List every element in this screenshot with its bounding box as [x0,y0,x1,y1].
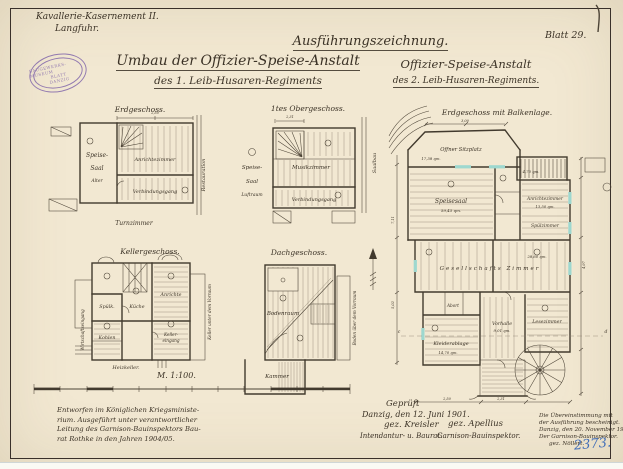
scale-bar [32,382,354,396]
dim-label: 5,02 [391,300,395,309]
room-lesezimmer: Lesezimmer [531,319,562,325]
sheet-number: Blatt 29. [545,31,586,42]
section-marker-c: c [398,330,401,335]
room-verbindungsgang: Verbindungsgang [133,189,178,195]
room-anrichtezimmer: Anrichtezimmer [134,157,176,163]
north-arrow [364,246,382,292]
scale-label: M. 1:100. [157,371,196,380]
room-verbindungsgang-og: Verbindungsgang [292,197,337,203]
dach-title: Dachgeschoss. [270,248,327,257]
room-spuelzimmer: Spülzimmer [531,223,560,229]
room-turnzimmer: Turnzimmer [115,220,154,227]
cert-line1: Die Übereinstimmung mit [539,413,623,420]
room-speise: Speise- [86,152,108,159]
plan-kellergeschoss: Kellergeschoss. Spülk. Küche Anrichte Ko… [58,246,243,384]
side-label-keller-vorraum: Keller unter dem Vorraum [207,284,212,341]
dim-label: 4,97 [582,260,586,270]
dach-walls [245,265,350,394]
scan-edge-strip [0,462,623,469]
side-label-restauration: Restauration [201,159,207,193]
keller-title: Kellergeschoss. [119,247,179,256]
approval-ggeprueft: Geprüft [386,400,419,410]
drawing-type-title: Ausführungszeichnung. [288,35,453,50]
haupt-title: Erdgeschoss mit Balkenlage. [441,108,552,117]
room-offner-sitzplatz: Offner Sitzplatz [440,147,482,153]
note-line2: rium. Ausgeführt unter verantwortlicher [57,416,201,426]
haupt-dimension-lines [395,122,603,404]
room-kohlen: Kohlen [98,335,116,341]
dim-label: 3,00 [461,119,470,123]
room-kellereingang-1: Keller- [163,332,179,337]
plan-obergeschoss: 1tes Obergeschoss. Speise- Saal Luftraum… [228,103,388,238]
approval-date: Danzig, den 12. Juni 1901. [362,410,470,419]
drawing-sheet: Kavallerie-Kasernement II. Langfuhr. BAU… [0,0,623,469]
room-speise-og: Speise- [242,165,262,171]
area-sitzplatz: 17,38 qm. [421,156,440,161]
room-spuelkueche: Spülk. [99,304,115,310]
keller-walls [75,253,205,368]
side-label-saalbau: Saalbau [372,153,378,173]
note-line4: rat Rothke in den Jahren 1904/05. [57,435,201,445]
construction-note: Entworfen im Königlichen Kriegsministe- … [57,406,201,444]
room-kueche: Küche [128,304,144,310]
main-title-line1: Umbau der Offizier-Speise-Anstalt [112,53,364,69]
note-line3: Leitung des Garnison-Bauinspektors Bau- [57,425,201,435]
main-title-line2: des 1. Leib-Husaren-Regiments [142,75,334,87]
signature-left: gez. Kreisler [384,421,439,431]
room-kammer: Kammer [264,374,289,380]
room-kellereingang-2: eingang [162,338,179,343]
label-heizkeller: Heizkeller. [111,365,140,371]
dim-label: 2,31 [496,397,505,401]
signer-title-right: Garnison-Bauinspektor. [437,432,520,440]
room-anrichte-kg: Anrichte [160,292,182,298]
section-marker-d: d [605,329,608,335]
archive-number: 2373. [573,436,611,454]
room-anrichtezimmer-eg: Anrichtezimmer [526,197,564,202]
room-speisesaal: Speisesaal [435,198,467,205]
dim-label: 2,31 [285,115,294,119]
area-gesellschaft: 28,60 qm. [526,254,546,259]
room-saal-og: Saal [246,179,258,185]
note-line1: Entworfen im Königlichen Kriegsministe- [57,406,201,416]
room-luftraum: Luftraum [240,192,262,198]
right-subtitle-line2: des 2. Leib-Husaren-Regiments. [382,76,550,86]
dim-label: 7,11 [391,216,395,224]
haupt-hatching [410,159,568,392]
room-saal: Saal [90,165,103,172]
area-speisesaal: 59,45 qm. [441,208,461,213]
room-alter: Alter [90,178,103,184]
side-label-wirtschaftseingang: Wirtschaftseingang [80,309,85,351]
erdgeschoss-walls [49,115,201,215]
location-line1: Kavallerie-Kasernement II. [36,12,159,22]
plan-erdgeschoss: Erdgeschoss. Speise- Saal Alter Anrichte… [45,103,225,235]
room-abort: Abort [446,303,459,308]
dim-label: 2,50 [150,111,160,115]
archive-stamp: BAUGEWERKS-MUSEUM BLATT DANZIG [26,48,91,97]
plan-hauptgrundriss: Erdgeschoss mit Balkenlage. Offner Sitzp… [385,100,613,408]
signature-right: gez. Apellius [448,420,503,430]
room-bodenraum: Bodenraum [266,311,299,317]
room-musikzimmer: Musikzimmer [291,165,330,171]
side-label-boden-vorraum: Boden über dem Vorraum [352,291,357,347]
cert-line2: der Ausführung bescheinigt. [539,420,623,427]
location-line2: Langfuhr. [55,24,99,34]
room-gesellschaftszimmer: Gesellschafts Zimmer [440,266,541,272]
area-kleiderablage: 14,70 qm. [438,350,457,355]
signer-title-left: Intendantur- u. Baurat. [360,432,443,440]
area-treppe: 4,70 qm. [522,169,540,174]
room-kleiderablage: Kleiderablage [432,341,468,347]
corner-pen-mark [590,4,602,34]
right-subtitle-line1: Offizier-Speise-Anstalt [396,58,536,71]
haupt-walls [389,106,611,399]
cert-line3: Danzig, den 20. November 1905. [539,427,623,434]
dim-label: 2,50 [442,397,452,401]
area-vorhalle: 9,01 qm. [494,328,511,333]
obergeschoss-title: 1tes Obergeschoss. [271,104,345,113]
area-anrichte: 13,50 qm. [535,204,554,209]
room-vorhalle: Vorhalle [492,321,512,327]
